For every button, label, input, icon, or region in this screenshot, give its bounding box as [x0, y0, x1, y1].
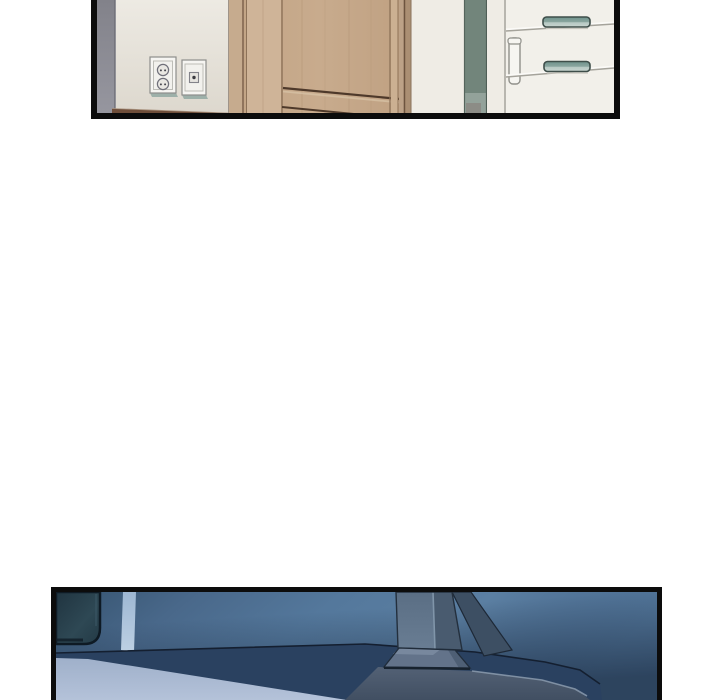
monitor-stand-column: [396, 592, 462, 650]
light-switch: [182, 60, 208, 99]
panel-bottom-desk-scene: [51, 587, 662, 700]
monitor-back: [56, 592, 100, 644]
drawer-cabinet: [504, 0, 614, 113]
light-strip: [121, 592, 136, 652]
wall-corner-strip: [97, 0, 115, 113]
room-scene-art: [97, 0, 614, 113]
drawer-handle-bottom: [544, 62, 590, 74]
wall-before-cabinet: [487, 0, 504, 113]
desk-scene-art: [56, 592, 657, 700]
door-gap-teal: [464, 0, 487, 113]
wardrobe-door: [228, 0, 411, 113]
comic-page: { "page": { "kind": "webtoon-comic-page"…: [0, 0, 720, 700]
wall-after-door: [412, 0, 464, 113]
power-outlet: [150, 57, 178, 97]
drawer-handle-top: [543, 17, 590, 29]
panel-top-room-scene: [91, 0, 620, 119]
